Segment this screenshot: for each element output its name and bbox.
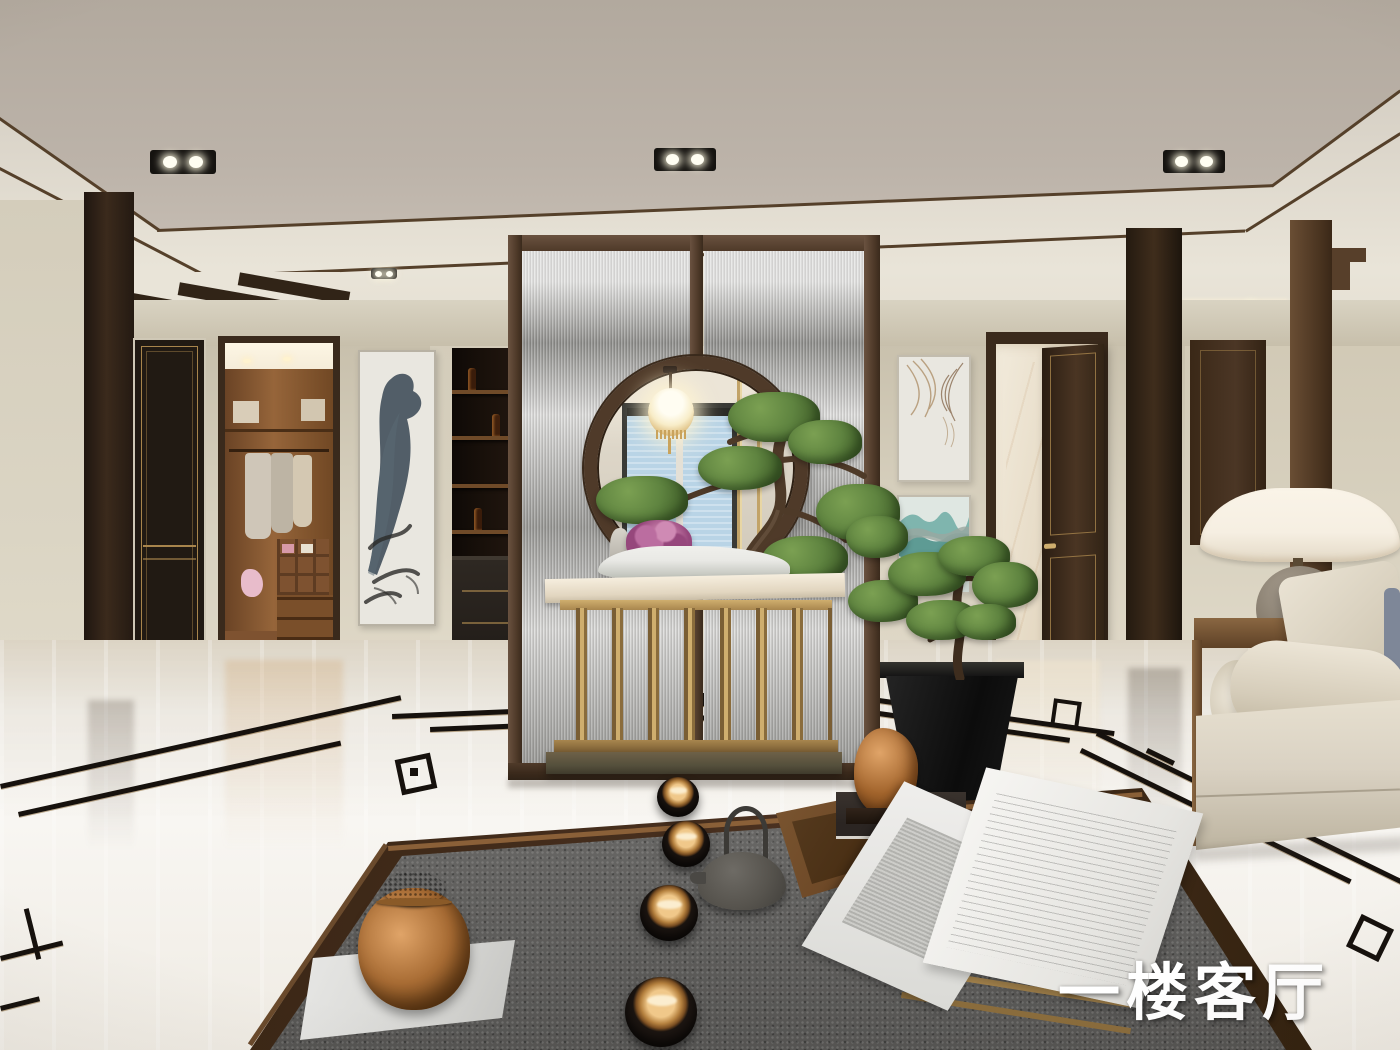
floor-inlay-key [1050, 698, 1082, 730]
door-gold-line [143, 558, 196, 560]
recessed-spotlight [150, 150, 216, 174]
ink-scroll-artwork [358, 350, 436, 626]
tea-bowl [640, 885, 698, 941]
closet-shelf [225, 429, 333, 432]
stepped-frame-notch [1332, 248, 1366, 262]
tea-bowl [657, 777, 699, 817]
open-door-panel [1042, 344, 1104, 676]
wine-bottle [468, 368, 476, 390]
closet-rod [229, 449, 329, 452]
recessed-spotlight [654, 148, 716, 171]
door-gold-beading [146, 351, 193, 661]
wine-bottle [492, 414, 500, 436]
bonsai-foliage [788, 420, 862, 464]
closet-ceiling [225, 343, 333, 369]
storage-box [233, 401, 259, 423]
teapot-spout [690, 872, 706, 884]
closet-downlight [283, 357, 291, 361]
folded-towel [301, 544, 313, 553]
pink-cloth [241, 569, 263, 597]
hanging-clothes [271, 453, 293, 533]
closet-doorway [218, 336, 340, 684]
bonsai-foliage [596, 476, 688, 524]
partition-stile [508, 235, 522, 780]
hanging-clothes [293, 455, 312, 527]
bonsai-foliage [698, 446, 782, 490]
tea-bowl [625, 977, 697, 1047]
stepped-frame-notch [1332, 262, 1350, 290]
black-door [133, 338, 206, 674]
floor-bonsai-foliage [956, 604, 1016, 640]
living-room-render: 一楼客厅 [0, 0, 1400, 1050]
console-plinth [546, 752, 842, 774]
floor-inlay-dot [410, 768, 418, 776]
door-gold-line [143, 545, 196, 547]
hanging-clothes [245, 453, 271, 539]
bronze-jar [358, 888, 470, 1010]
closet-downlight [243, 359, 251, 363]
wood-pillar-right [1126, 228, 1182, 670]
storage-box [301, 399, 325, 421]
console-bottom-rail [554, 740, 838, 752]
folded-towel [282, 544, 294, 553]
door-panel-trim [1050, 352, 1096, 535]
floor-reflection-dark [88, 700, 134, 850]
door-handle [1044, 543, 1056, 549]
tea-bowl [662, 821, 710, 867]
wine-bottle [474, 508, 482, 530]
ink-painting [360, 352, 434, 624]
floor-bonsai-foliage [972, 562, 1038, 608]
console-legs [560, 608, 832, 744]
recessed-spotlight-small [371, 268, 397, 279]
bonsai-foliage [846, 516, 908, 558]
caption-text: 一楼客厅 [1058, 942, 1330, 1032]
recessed-spotlight [1163, 150, 1225, 173]
bronze-jar-collar [376, 898, 452, 906]
